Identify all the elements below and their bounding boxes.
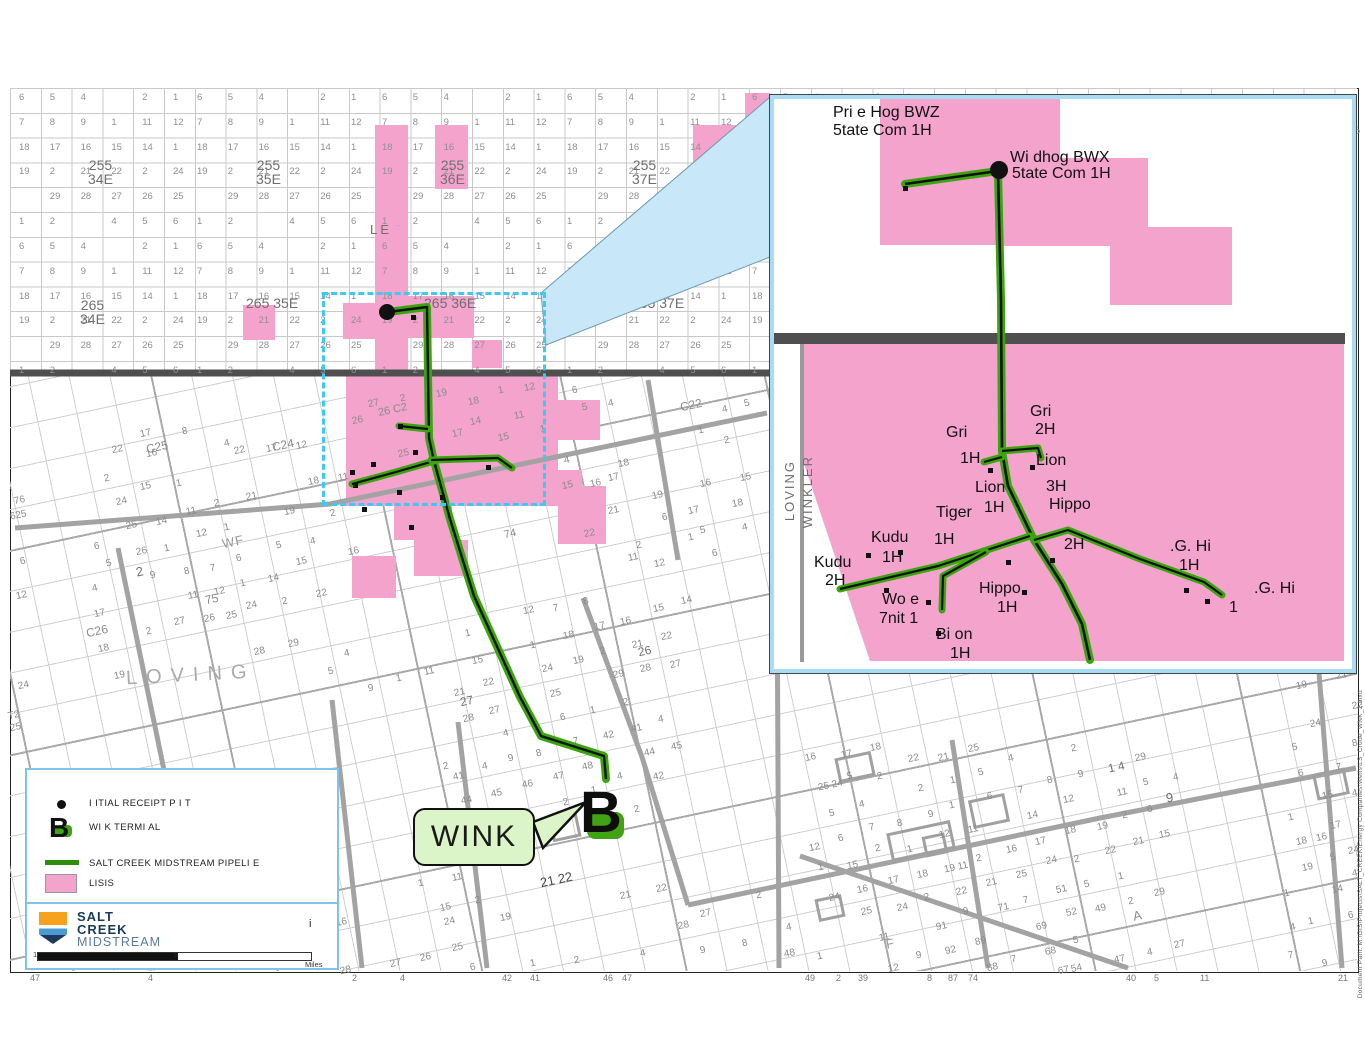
well-label: Hippo: [1049, 496, 1091, 514]
well-marker: [1030, 465, 1035, 470]
lease-swatch-icon: [45, 874, 77, 893]
zoom-extent-box: [322, 292, 546, 506]
well-label: 1H: [1179, 557, 1199, 575]
well-label: Kudu: [871, 529, 908, 547]
well-marker: [1050, 558, 1055, 563]
legend-item-label: LISIS: [89, 878, 114, 889]
well-label: Hippo: [979, 580, 1021, 598]
well-label: 2H: [1064, 536, 1084, 554]
well-label: 7nit 1: [879, 610, 918, 628]
scale-label-left: 1: [33, 950, 37, 959]
scale-unit: Miles: [305, 960, 323, 969]
logo-text: SALT CREEK MIDSTREAM: [77, 910, 161, 949]
well-marker: [866, 553, 871, 558]
well-label: 5tate Com 1H: [1012, 165, 1111, 183]
well-label: Lion: [975, 479, 1005, 497]
well-label: Tiger: [936, 504, 972, 522]
legend-item-label: WI K TERMI AL: [89, 822, 161, 833]
terminal-green-fill: [52, 825, 72, 837]
well-label: 1H: [882, 549, 902, 567]
inset-lease-polygon: [1110, 227, 1232, 305]
terminal-b-icon: B: [49, 812, 69, 844]
well-label: 1: [1229, 599, 1238, 617]
well-label: .G. Hi: [1170, 538, 1211, 556]
well-label: Pri e Hog BWZ: [833, 104, 940, 122]
well-label: Lion: [1036, 452, 1066, 470]
well-marker: [1006, 560, 1011, 565]
well-label: .G. Hi: [1254, 580, 1295, 598]
county-label-loving: LOVING: [782, 460, 797, 521]
legend-item-label: I ITIAL RECEIPT P I T: [89, 798, 191, 809]
well-marker: [988, 468, 993, 473]
well-marker: [1205, 599, 1210, 604]
salt-creek-shield-icon: [39, 912, 67, 944]
fold-mark: i: [309, 918, 311, 930]
well-label: 1H: [934, 531, 954, 549]
well-label: 2H: [825, 572, 845, 590]
well-label: Gri: [946, 424, 967, 442]
map-page: B WINK I ITIAL RECEIPT P I TBWI K TERMI …: [0, 0, 1365, 1055]
logo-box: SALT CREEK MIDSTREAM i 1 5 Miles: [25, 902, 339, 970]
well-label: Wo e: [882, 591, 919, 609]
well-label: Gri: [1030, 403, 1051, 421]
zoom-beam-polygon: [541, 97, 770, 345]
well-label: 2H: [1035, 421, 1055, 439]
well-marker: [926, 600, 931, 605]
legend-item-label: SALT CREEK MIDSTREAM PIPELI E: [89, 858, 260, 869]
well-label: Kudu: [814, 554, 851, 572]
well-marker: [903, 186, 908, 191]
well-label: Bi on: [936, 626, 972, 644]
legend: I ITIAL RECEIPT P I TBWI K TERMI ALSALT …: [25, 768, 339, 904]
well-label: 1H: [960, 450, 980, 468]
scale-bar-fill: [38, 953, 178, 960]
well-label: 3H: [1046, 478, 1066, 496]
well-label: 1H: [950, 645, 970, 663]
county-label-winkler: WINKLER: [800, 455, 815, 528]
receipt-dot-icon: [57, 800, 66, 809]
well-marker: [1022, 590, 1027, 595]
well-label: 5tate Com 1H: [833, 122, 932, 140]
pipeline-line-icon: [45, 860, 79, 865]
scale-label-mid: 5: [174, 950, 178, 959]
well-label: 1H: [984, 499, 1004, 517]
inset-state-boundary: [771, 333, 1345, 344]
well-marker: [1184, 588, 1189, 593]
inset-initial-receipt-point: [990, 161, 1008, 179]
logo-line3: MIDSTREAM: [77, 936, 161, 949]
well-label: 1H: [997, 599, 1017, 617]
